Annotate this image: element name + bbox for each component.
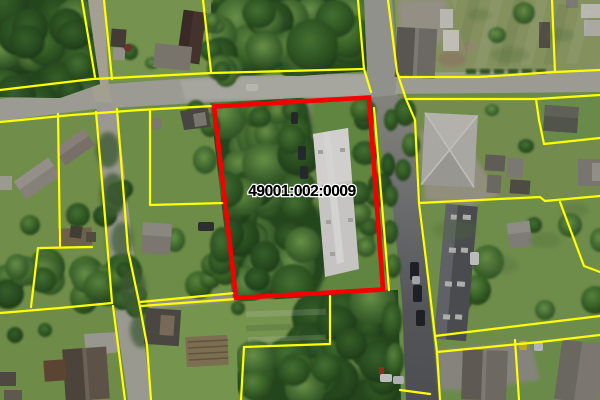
svg-text:49001:002:0009: 49001:002:0009 <box>248 183 356 200</box>
